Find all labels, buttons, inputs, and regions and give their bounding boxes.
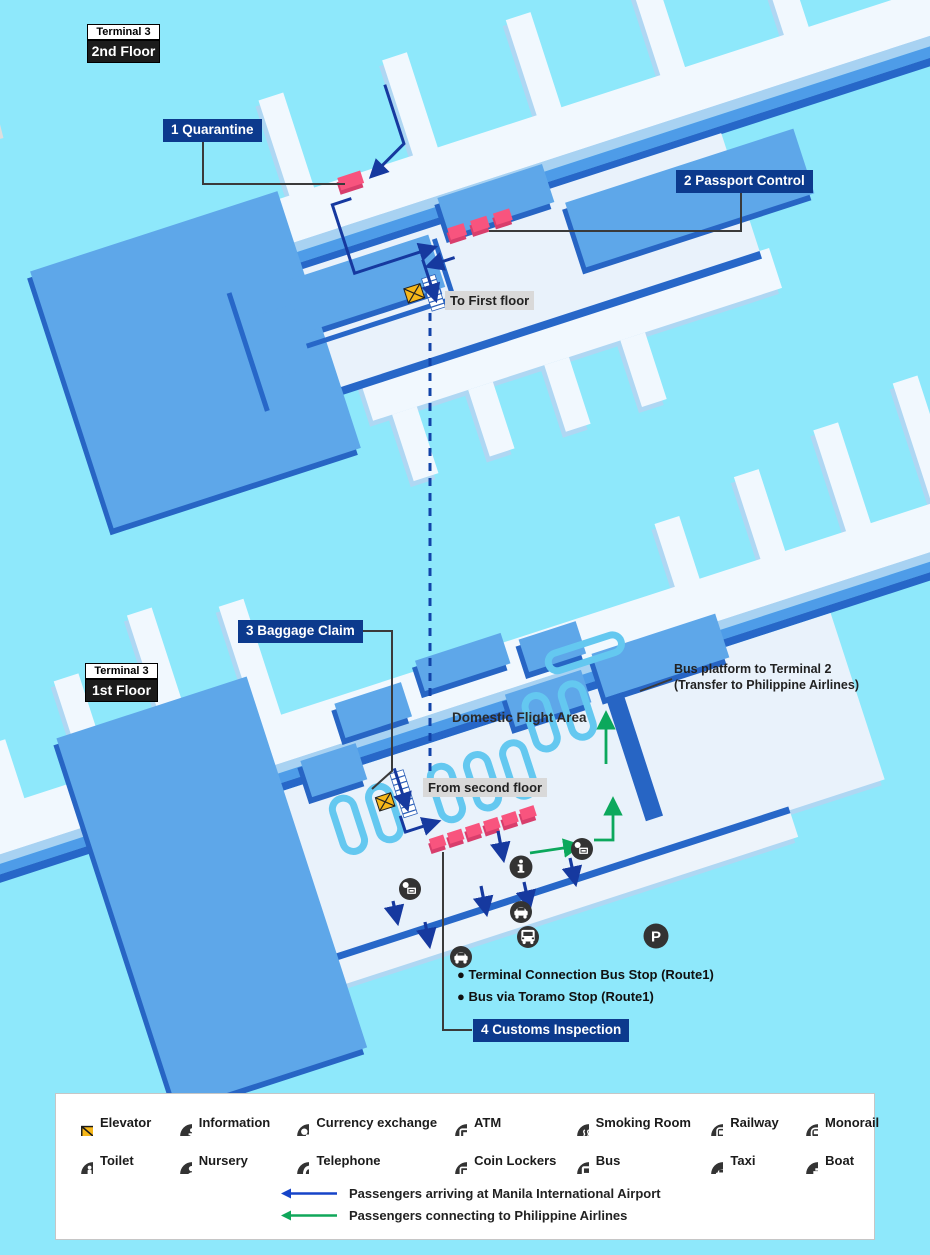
- terminal-name: Terminal 3: [87, 24, 160, 40]
- atm-icon: [440, 1109, 467, 1136]
- terminal-name: Terminal 3: [85, 663, 158, 679]
- currency-exchange-icon: [399, 878, 421, 900]
- monorail-icon: [791, 1109, 818, 1136]
- label-from-second-floor: From second floor: [423, 778, 547, 797]
- boat-icon: [791, 1147, 818, 1174]
- legend-arrow-arriving: Passengers arriving at Manila Internatio…: [281, 1182, 864, 1204]
- label-domestic-flight-area: Domestic Flight Area: [452, 711, 587, 725]
- label-bus-platform: Bus platform to Terminal 2 (Transfer to …: [674, 661, 859, 693]
- railway-icon: [696, 1109, 723, 1136]
- legend-panel: Elevator Information Currency exchange A…: [55, 1093, 875, 1240]
- legend-item-currency-exchange: Currency exchange: [282, 1109, 440, 1136]
- blue-arrow-icon: [281, 1188, 339, 1199]
- label-customs-inspection: 4 Customs Inspection: [473, 1019, 629, 1042]
- airport-terminal-map: P Terminal 3 2nd Floor Terminal 3 1st Fl…: [0, 0, 930, 1255]
- bus-stop-item: ● Bus via Toramo Stop (Route1): [457, 986, 714, 1008]
- label-quarantine: 1 Quarantine: [163, 119, 262, 142]
- elevator-icon: [66, 1109, 93, 1136]
- legend-item-nursery: Nursery: [165, 1147, 283, 1174]
- information-icon: [165, 1109, 192, 1136]
- legend-item-taxi: Taxi: [696, 1147, 791, 1174]
- legend-item-smoking-room: Smoking Room: [562, 1109, 697, 1136]
- nursery-icon: [165, 1147, 192, 1174]
- legend-item-boat: Boat: [791, 1147, 864, 1174]
- floor-tag-1f: Terminal 3 1st Floor: [85, 663, 158, 702]
- parking-icon-letter: P: [651, 929, 661, 946]
- parking-icon: P: [644, 924, 669, 949]
- legend-item-toilet: Toilet: [66, 1147, 165, 1174]
- taxi-icon: [696, 1147, 723, 1174]
- floor-name: 1st Floor: [85, 679, 158, 702]
- floor-name: 2nd Floor: [87, 40, 160, 63]
- green-arrow-icon: [281, 1210, 339, 1221]
- floor-tag-2f: Terminal 3 2nd Floor: [87, 24, 160, 63]
- bus-icon: [517, 926, 539, 948]
- legend-item-telephone: Telephone: [282, 1147, 440, 1174]
- label-to-first-floor: To First floor: [445, 291, 534, 310]
- currency-exchange-icon: [571, 838, 593, 860]
- toilet-icon: [66, 1147, 93, 1174]
- legend-arrow-key: Passengers arriving at Manila Internatio…: [281, 1182, 864, 1226]
- information-icon: [510, 856, 533, 879]
- coin-lockers-icon: [440, 1147, 467, 1174]
- label-bus-stops: ● Terminal Connection Bus Stop (Route1) …: [457, 964, 714, 1008]
- label-passport-control: 2 Passport Control: [676, 170, 813, 193]
- legend-item-railway: Railway: [696, 1109, 791, 1136]
- legend-item-monorail: Monorail: [791, 1109, 864, 1136]
- legend-item-coin-lockers: Coin Lockers: [440, 1147, 562, 1174]
- bus-stop-item: ● Terminal Connection Bus Stop (Route1): [457, 964, 714, 986]
- telephone-icon: [282, 1147, 309, 1174]
- label-baggage-claim: 3 Baggage Claim: [238, 620, 363, 643]
- smoking-room-icon: [562, 1109, 589, 1136]
- currency-exchange-icon: [282, 1109, 309, 1136]
- legend-item-atm: ATM: [440, 1109, 562, 1136]
- bus-icon: [562, 1147, 589, 1174]
- legend-arrow-connecting: Passengers connecting to Philippine Airl…: [281, 1204, 864, 1226]
- legend-item-bus: Bus: [562, 1147, 697, 1174]
- legend-item-information: Information: [165, 1109, 283, 1136]
- taxi-icon: [510, 901, 532, 923]
- legend-item-elevator: Elevator: [66, 1109, 165, 1136]
